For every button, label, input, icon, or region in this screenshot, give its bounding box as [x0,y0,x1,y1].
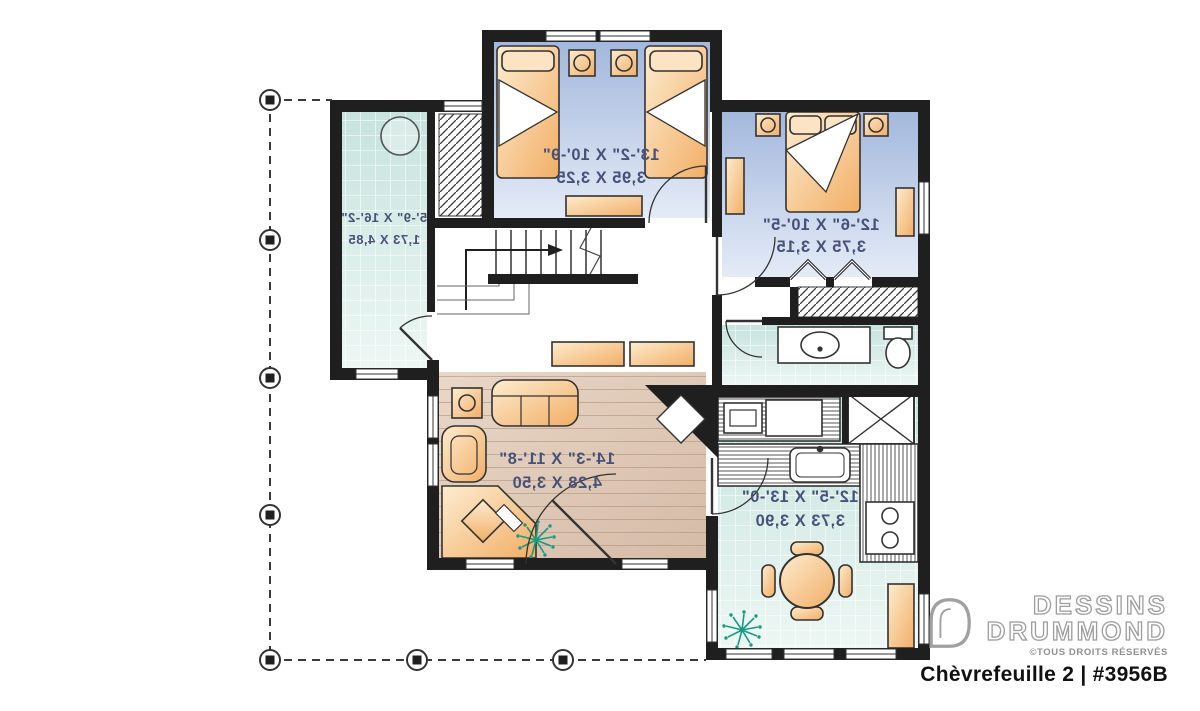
closet-left-hangers [439,114,482,216]
window [846,649,896,659]
hall-cabinet [552,342,624,366]
kitchen-sink-counter [718,444,860,486]
pantry-unit [848,394,914,444]
brand-block: DESSINS DRUMMOND ©TOUS DROITS RÉSERVÉS C… [920,592,1168,687]
dresser [726,158,744,214]
window [546,31,596,41]
buffet [888,584,914,648]
window [707,590,717,642]
porch-dim-imperial: 5'-9" X 16'-2" [341,210,427,225]
stove [866,502,914,554]
armchair [442,426,486,482]
brand-name-bottom: DRUMMOND [987,618,1168,644]
plan-title: Chèvrefeuille 2 | #3956B [920,663,1168,687]
sofa [492,380,578,426]
dresser [896,188,914,236]
porch-dim-metric: 1,73 X 4,85 [348,232,420,247]
stairs [437,226,601,314]
brand-row: DESSINS DRUMMOND [987,592,1168,644]
window [726,649,772,659]
closet-master-hangers [798,287,918,317]
living-dim-imperial: 14'-3" X 11'-8" [499,450,615,468]
night-table [611,50,637,76]
toilet [884,327,912,368]
drummond-d-logo-icon [920,592,972,654]
copyright-text: ©TOUS DROITS RÉSERVÉS [1029,647,1168,658]
under-stair-lines [437,284,529,314]
bathroom-vanity [778,327,870,363]
night-table [569,50,595,76]
brand-names: DESSINS DRUMMOND [987,592,1168,644]
window [428,396,438,438]
bedroom-top-dim-metric: 3,95 X 3,25 [556,169,646,187]
window [919,182,929,234]
window [622,559,668,569]
window [356,369,398,379]
hall-cabinet [630,342,694,366]
kitchen-dim-imperial: 12'-5" X 13'-0" [741,488,858,506]
window [466,559,514,569]
window [600,31,650,41]
porch-round-table [381,117,419,155]
night-table [864,114,888,136]
dresser [566,196,642,216]
window [444,101,482,111]
bedroom-master-dim-imperial: 12'-6" X 10'-5" [762,216,879,234]
bed-double [786,112,860,212]
kitchen-dim-metric: 3,73 X 3,90 [755,512,845,530]
night-table [756,114,780,136]
living-dim-metric: 4,28 X 3,50 [512,474,602,492]
kitchen-counter-right [860,444,918,562]
side-table-lamp [452,388,482,418]
bedroom-top-dim-imperial: 13'-2" X 10'-9" [542,146,659,164]
brand-name-top: DESSINS [1033,592,1168,618]
stair-break-line [580,226,600,278]
bedroom-master-dim-metric: 3,75 X 3,15 [776,238,866,256]
floor-plan-page: 13'-2" X 10'-9" 3,95 X 3,25 12'-6" X 10'… [0,0,1200,711]
kitchen-counter-top [718,397,840,441]
window [428,444,438,486]
window [784,649,834,659]
